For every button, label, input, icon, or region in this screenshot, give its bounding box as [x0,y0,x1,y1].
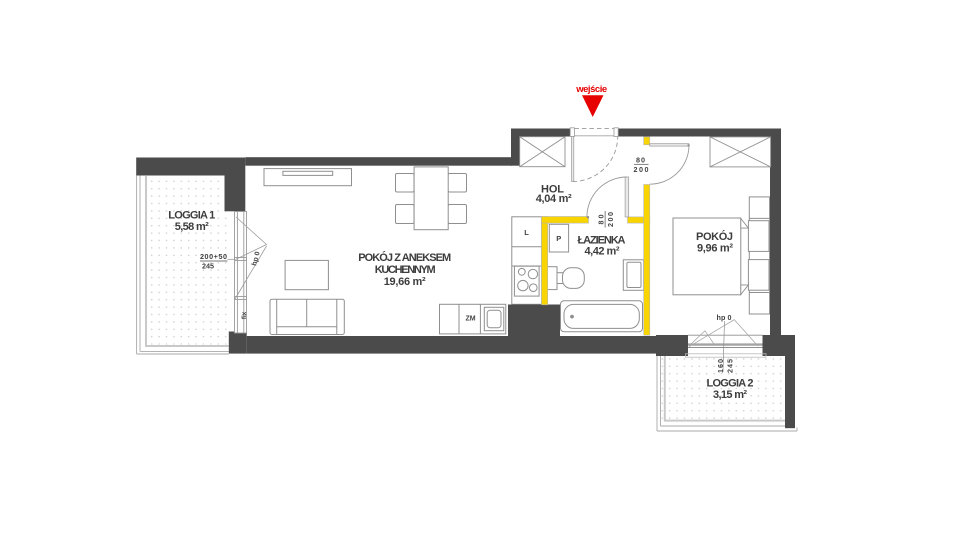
svg-text:LOGGIA 2: LOGGIA 2 [707,377,754,389]
svg-text:200: 200 [634,165,649,174]
svg-text:4,42 m²: 4,42 m² [585,246,620,258]
svg-text:ZM: ZM [465,316,475,323]
svg-text:200: 200 [606,212,615,227]
svg-text:80: 80 [636,156,645,165]
svg-text:POKÓJ: POKÓJ [696,230,733,243]
svg-text:4,04 m²: 4,04 m² [536,193,572,205]
svg-text:L: L [524,228,529,237]
svg-text:hp 0: hp 0 [717,313,732,322]
svg-text:200+50: 200+50 [200,252,227,261]
svg-text:3,15 m²: 3,15 m² [713,389,747,401]
svg-text:19,66 m²: 19,66 m² [384,276,426,288]
svg-text:KUCHENNYM: KUCHENNYM [375,264,436,276]
svg-text:245: 245 [202,262,214,271]
svg-text:fix: fix [241,311,248,319]
svg-text:9,96 m²: 9,96 m² [697,243,733,255]
svg-text:LOGGIA 1: LOGGIA 1 [168,209,215,221]
svg-text:245: 245 [726,359,735,373]
svg-text:P: P [556,234,561,243]
svg-text:160: 160 [716,359,725,373]
svg-text:5,58 m²: 5,58 m² [175,221,209,233]
svg-text:POKÓJ Z ANEKSEM: POKÓJ Z ANEKSEM [358,251,451,264]
svg-text:wejście: wejście [575,84,607,95]
